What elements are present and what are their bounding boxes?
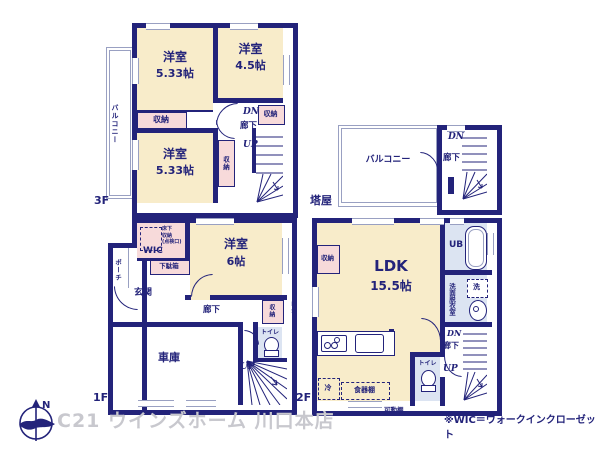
bedroom-c-size: 5.33帖 bbox=[137, 164, 213, 178]
refrigerator-label: 冷 bbox=[318, 379, 338, 397]
bedroom-b-name: 洋室 bbox=[218, 42, 283, 58]
entrance-label: 玄関 bbox=[134, 288, 152, 298]
stove-burner-icon bbox=[331, 342, 338, 349]
closet-a-label: 収納 bbox=[137, 113, 185, 127]
ldk-size: 15.5帖 bbox=[341, 279, 441, 294]
unit-bath-label: UB bbox=[449, 240, 463, 250]
window-marker bbox=[146, 23, 170, 30]
up-label-1f: UP bbox=[240, 362, 255, 372]
compass-ornament bbox=[19, 419, 55, 430]
window-marker bbox=[282, 238, 289, 274]
balcony-3f-label: バルコニー bbox=[111, 84, 119, 164]
cupboard-label: 食器棚 bbox=[341, 383, 388, 397]
window-marker bbox=[447, 125, 465, 132]
washer-label: 洗 bbox=[467, 280, 486, 295]
window-marker bbox=[283, 55, 290, 85]
bedroom-a-name: 洋室 bbox=[137, 50, 213, 66]
toilet-tank-icon bbox=[421, 385, 436, 392]
wic-definition-note: ※WIC＝ウォークインクローゼット bbox=[444, 411, 600, 441]
hallway-label-2f: 廊下 bbox=[443, 341, 459, 350]
wall-segment bbox=[440, 377, 445, 406]
closet-1f-label: 収納 bbox=[267, 303, 274, 319]
pipe-space-label: PS bbox=[289, 300, 296, 316]
shoe-cabinet-label: 下駄箱 bbox=[150, 260, 188, 273]
stove-burner-icon bbox=[324, 342, 331, 349]
stove-burner-icon bbox=[334, 337, 340, 343]
underfloor-storage-line3: (点検口) bbox=[162, 239, 188, 246]
bedroom-b-size: 4.5帖 bbox=[218, 59, 283, 73]
up-label-2f: UP bbox=[443, 364, 458, 374]
floor-label-2f: 2F bbox=[296, 391, 311, 404]
watermark-text: C21 ウインズホーム 川口本店 bbox=[57, 406, 335, 433]
hallway-label-3f: 廊下 bbox=[240, 122, 257, 132]
toilet-2f-label: トイレ bbox=[415, 359, 440, 369]
toilet-tank-icon bbox=[264, 350, 279, 357]
wic-label: WIC bbox=[143, 246, 163, 256]
closet-b-label: 収納 bbox=[221, 147, 228, 179]
floor-label-3f: 3F bbox=[94, 194, 109, 207]
floor-label-tower: 塔屋 bbox=[310, 192, 332, 208]
floor-plan-canvas: バルコニー 洋室 5.33帖 洋室 4.5帖 収納 洋室 5.33帖 収納 収納… bbox=[0, 0, 600, 450]
window-marker bbox=[450, 218, 464, 225]
compass-north-letter: N bbox=[42, 400, 50, 411]
window-marker bbox=[352, 218, 394, 225]
closet-2f-label: 収納 bbox=[317, 246, 338, 271]
porch-step-line bbox=[128, 248, 129, 288]
window-marker bbox=[348, 401, 382, 408]
wall-segment bbox=[448, 177, 454, 194]
toilet-1f-label: トイレ bbox=[258, 328, 282, 338]
wall-segment bbox=[440, 270, 492, 275]
staircase-tower bbox=[462, 130, 487, 200]
ldk-name: LDK bbox=[341, 258, 441, 276]
window-marker bbox=[487, 233, 494, 255]
basin-drain-icon bbox=[473, 306, 479, 312]
north-arrow-head bbox=[32, 399, 40, 407]
wall-segment bbox=[218, 98, 283, 103]
balcony-tower-label: バルコニー bbox=[346, 152, 430, 168]
bedroom-a-size: 5.33帖 bbox=[137, 67, 213, 81]
window-marker bbox=[312, 287, 319, 317]
bedroom-c-name: 洋室 bbox=[137, 147, 213, 163]
hallway-label-1f: 廊下 bbox=[203, 306, 220, 316]
dn-label-2f: DN bbox=[447, 329, 461, 338]
window-marker bbox=[230, 23, 258, 30]
window-marker bbox=[196, 218, 234, 225]
bathtub-inner-icon bbox=[468, 229, 484, 267]
window-marker bbox=[420, 218, 444, 225]
movable-shelf-label: 可動棚 bbox=[384, 407, 404, 414]
dn-label-tower: DN bbox=[448, 132, 464, 142]
garage-label: 車庫 bbox=[158, 352, 180, 365]
closet-c-label: 収納 bbox=[258, 106, 283, 122]
porch-label: ポーチ bbox=[113, 249, 120, 291]
up-label-3f: UP bbox=[243, 140, 258, 150]
wall-segment bbox=[108, 322, 243, 327]
bedroom-1f-size: 6帖 bbox=[190, 255, 282, 269]
floor-label-1f: 1F bbox=[93, 391, 108, 404]
dn-label-3f: DN bbox=[243, 107, 259, 117]
kitchen-sink-icon bbox=[355, 334, 384, 353]
washroom-label: 洗面脱衣室 bbox=[447, 277, 454, 321]
bedroom-1f-name: 洋室 bbox=[190, 237, 282, 253]
staircase-2f bbox=[463, 327, 487, 401]
hallway-label-tower: 廊下 bbox=[443, 154, 460, 164]
wall-segment bbox=[137, 128, 218, 133]
staircase-3f bbox=[256, 128, 283, 203]
